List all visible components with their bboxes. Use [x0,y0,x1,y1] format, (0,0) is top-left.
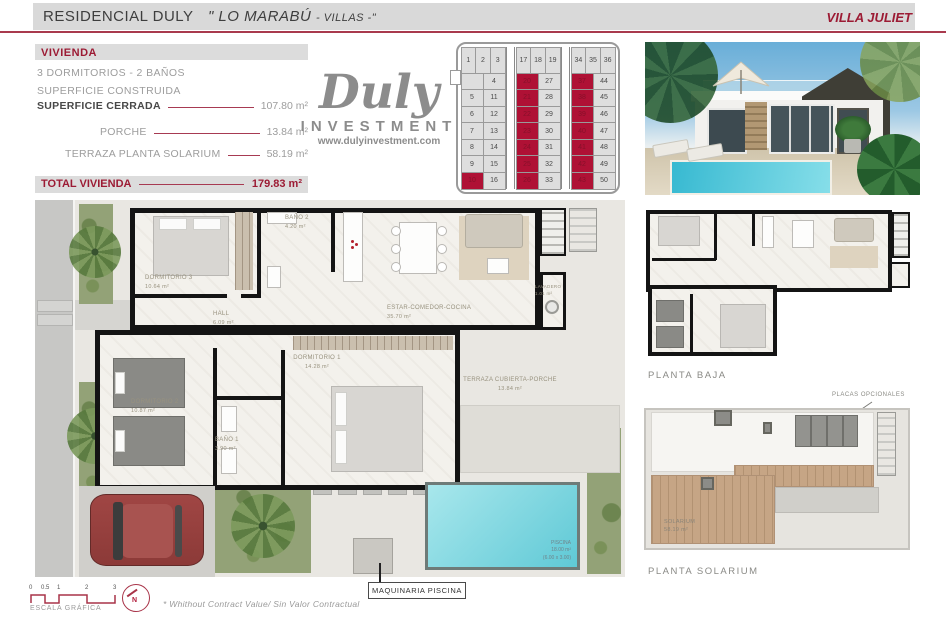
plot-cell-42: 42 [571,155,594,173]
plot-cell-34: 34 [571,47,587,74]
leader-line [139,184,243,185]
site-grid: 1234511612713814915101617181920272128222… [456,42,620,194]
leader-line [228,155,260,156]
row-label: SUPERFICIE CERRADA [37,100,161,112]
machinery-connector-line [379,563,381,582]
pb-wall [714,212,717,260]
plot-cell-1: 1 [461,47,477,74]
room-label-estar: ESTAR-COMEDOR-COCINA35.70 m² [387,304,471,321]
interior-wall [241,294,261,298]
page-title: RESIDENCIAL DULY " LO MARABÚ - VILLAS -" [43,8,376,25]
compass-icon: N [122,584,150,612]
pb-rug [830,246,878,268]
planta-baja-plan [644,206,926,366]
surface-row-cerrada: SUPERFICIE CERRADA 107.80 m² [37,100,308,112]
pb-bed [656,326,684,348]
vivienda-section-bar: VIVIENDA [35,44,308,60]
duly-logo: Duly INVESTMENT www.dulyinvestment.com [298,68,460,147]
scale-tick: 0.5 [41,585,49,591]
plot-cell-24: 24 [516,139,539,157]
scale-tick: 1 [57,585,60,591]
pillow [159,218,187,230]
car [90,494,204,566]
logo-url: www.dulyinvestment.com [298,136,460,147]
sink [221,406,237,432]
superficie-construida-line: SUPERFICIE CONSTRUIDA [37,85,181,97]
room-label-dormitorio1: DORMITORIO 114.28 m² [285,354,349,371]
grid-road [506,47,515,189]
hob-burner [351,246,354,249]
grid-road [561,47,570,189]
plot-cell-26: 26 [516,172,539,190]
pillow [193,218,221,230]
plot-cell-40: 40 [571,122,594,140]
pillow [115,372,125,394]
chair [391,244,401,254]
plot-cell-3: 3 [490,47,506,74]
entry-step [37,314,73,326]
pb-kitchen-island [762,216,774,248]
pool-label: PISCINA 18.00 m² (6.00 x 3.00) [543,540,571,563]
chair [391,226,401,236]
room-label-dormitorio3: DORMITORIO 310.64 m² [145,274,193,291]
plot-cell-29: 29 [538,106,561,124]
scale-tick: 2 [85,585,88,591]
villa-name: VILLA JULIET [827,10,912,25]
roof-vent [714,410,732,426]
compass-needle [127,589,138,597]
pb-sofa [834,218,874,242]
palm-tree [69,226,121,278]
pillow [335,392,347,426]
scale-tick: 3 [113,585,116,591]
plot-cell-14: 14 [483,139,506,157]
pillow [335,430,347,464]
interior-wall [213,348,217,488]
wardrobe [293,336,453,350]
plot-cell-47: 47 [593,122,616,140]
pb-toilet-room [890,262,910,288]
plot-cell-48: 48 [593,139,616,157]
plot-cell-10: 10 [461,172,484,190]
planta-solarium-plan: PLACAS OPCIONALES SOLARIUM58.19 m² [644,392,926,564]
solarium-label: SOLARIUM58.19 m² [664,518,695,535]
solar-panels [795,415,858,447]
interior-wall [257,210,261,298]
plot-cell-37: 37 [571,73,594,91]
sofa [465,214,523,248]
chair [391,262,401,272]
room-label-lavadero: LAVADERO1.01 m² [535,284,571,298]
brochure-page: RESIDENCIAL DULY " LO MARABÚ - VILLAS -"… [0,0,946,630]
compass-n: N [132,597,137,604]
row-value: 58.19 m² [267,148,308,160]
header-divider [0,31,946,33]
plot-cell-6: 6 [461,106,484,124]
project-name: " LO MARABÚ [208,8,311,25]
plot-cell-23: 23 [516,122,539,140]
logo-wordmark: Duly [298,68,460,117]
stairs [540,208,566,256]
project-villas: - VILLAS -" [316,12,376,24]
room-label-bano1: BAÑO 13.90 m² [215,436,239,453]
leader-line [154,133,260,134]
pb-bed [658,216,700,246]
dining-table [399,222,437,274]
pb-wall [652,258,716,261]
pillow [115,430,125,452]
coffee-table [487,258,509,274]
plot-cell-27: 27 [538,73,561,91]
chair [437,244,447,254]
photo-pool [670,160,832,195]
plot-cell-7: 7 [461,122,484,140]
bedrooms-baths-line: 3 DORMITORIOS - 2 BAÑOS [37,67,185,79]
row-label: PORCHE [100,126,147,138]
plot-cell-30: 30 [538,122,561,140]
photo-plant-pot [844,139,861,153]
site-grid-notch [450,70,461,85]
covered-terrace [460,405,620,473]
plot-cell-45: 45 [593,89,616,107]
planta-baja-label: PLANTA BAJA [648,370,727,381]
grid-group: 12345116127138149151016 [461,47,505,189]
toilet [267,266,281,288]
photo-glass-doors [769,104,835,154]
logo-investment: INVESTMENT [298,118,460,135]
machinery-label-box: MAQUINARIA PISCINA [368,582,466,599]
plot-cell-41: 41 [571,139,594,157]
wardrobe [235,212,253,290]
plot-cell-20: 20 [516,73,539,91]
plot-cell-18: 18 [530,47,546,74]
sol-stairs [877,412,896,476]
pb-wall [752,212,755,246]
plot-cell-4: 4 [483,73,506,91]
scale-label: ESCALA GRÁFICA [30,605,102,612]
plot-cell-35: 35 [585,47,601,74]
contract-note: * Whithout Contract Value/ Sin Valor Con… [163,599,360,609]
roof-vent [763,422,772,434]
deck-vent [701,477,714,490]
plot-cell-32: 32 [538,155,561,173]
pb-bed [656,300,684,322]
plot-cell-25: 25 [516,155,539,173]
vivienda-label: VIVIENDA [35,44,308,59]
interior-wall [215,396,283,400]
total-value: 179.83 m² [252,178,302,190]
pb-dining-table [792,220,814,248]
plot-cell-5: 5 [461,89,484,107]
plot-cell-49: 49 [593,155,616,173]
room-label-hall: HALL6.09 m² [213,310,234,327]
total-bar: TOTAL VIVIENDA 179.83 m² [35,176,308,193]
plot-cell-empty [461,73,484,91]
entry-walkway [75,300,133,330]
room-label-dormitorio2: DORMITORIO 210.87 m² [131,398,179,415]
surface-row-terraza: TERRAZA PLANTA SOLARIUM 58.19 m² [65,148,308,160]
plot-cell-12: 12 [483,106,506,124]
villa-photo [645,42,920,195]
plot-cell-28: 28 [538,89,561,107]
plot-cell-15: 15 [483,155,506,173]
main-floor-plan: PISCINA 18.00 m² (6.00 x 3.00) DORMITORI… [35,200,625,577]
room-label-bano2: BAÑO 24.20 m² [285,214,309,231]
plot-cell-31: 31 [538,139,561,157]
plot-cell-46: 46 [593,106,616,124]
grid-group: 1718192027212822292330243125322633 [516,47,560,189]
plot-cell-16: 16 [483,172,506,190]
plot-cell-21: 21 [516,89,539,107]
plot-cell-33: 33 [538,172,561,190]
pb-stairs [892,212,910,258]
scale-tick: 0 [29,585,32,591]
plot-cell-44: 44 [593,73,616,91]
hob-burner [351,240,354,243]
row-label: TERRAZA PLANTA SOLARIUM [65,148,221,160]
washer-icon [545,300,559,314]
photo-stone-wall [745,102,767,150]
plot-cell-43: 43 [571,172,594,190]
total-row: TOTAL VIVIENDA 179.83 m² [35,176,308,190]
plot-cell-50: 50 [593,172,616,190]
chair [437,262,447,272]
pool-equipment [353,538,393,574]
pb-bed [720,304,766,348]
plot-cell-13: 13 [483,122,506,140]
plot-cell-39: 39 [571,106,594,124]
plot-cell-8: 8 [461,139,484,157]
plot-cell-9: 9 [461,155,484,173]
plot-cell-38: 38 [571,89,594,107]
plot-cell-19: 19 [545,47,561,74]
plot-cell-17: 17 [516,47,532,74]
photo-parasol-icon [711,60,771,96]
grid-group: 3435363744384539464047414842494350 [571,47,615,189]
concrete-area [775,487,879,513]
plot-cell-22: 22 [516,106,539,124]
entry-step [37,300,73,312]
hob-burner [355,243,358,246]
pool: PISCINA 18.00 m² (6.00 x 3.00) [425,482,580,570]
surface-row-porche: PORCHE 13.84 m² [100,126,308,138]
palm-tree [231,494,295,558]
leader-line [168,107,254,108]
plot-cell-2: 2 [475,47,491,74]
chair [437,226,447,236]
interior-wall [135,294,227,298]
interior-wall [331,210,335,272]
room-label-terraza: TERRAZA CUBIERTA-PORCHE13.84 m² [440,376,580,393]
plot-cell-36: 36 [600,47,616,74]
pb-wall [690,294,693,352]
exterior-steps [569,208,597,252]
total-label: TOTAL VIVIENDA [41,178,131,190]
planta-solarium-label: PLANTA SOLARIUM [648,566,759,577]
placas-annotation: PLACAS OPCIONALES [832,392,905,398]
project-title: RESIDENCIAL DULY [43,8,193,25]
plot-cell-11: 11 [483,89,506,107]
